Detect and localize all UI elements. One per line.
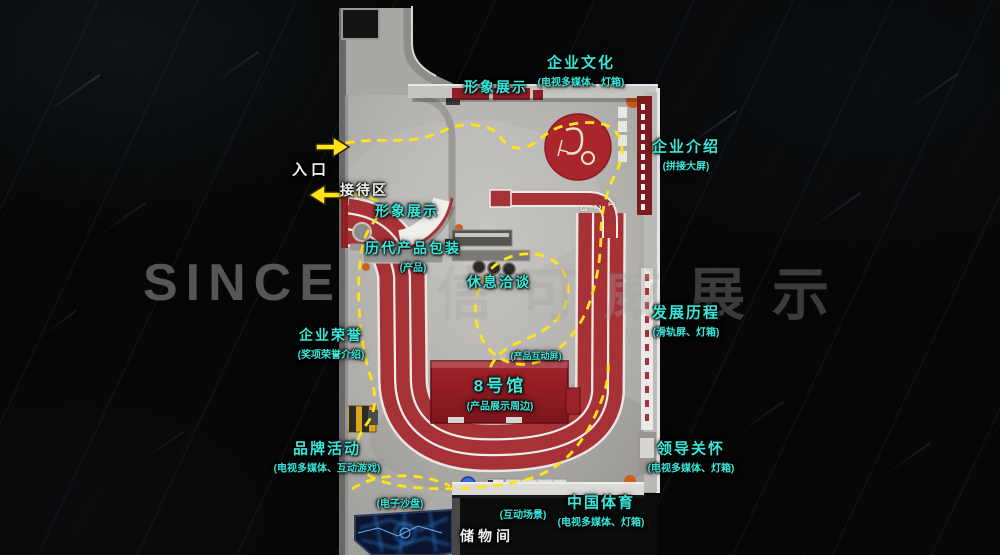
exhibition-floorplan-image: SINCE xyxy=(0,0,1000,555)
lane-number: 1 xyxy=(607,201,617,206)
zone-label-rest-area: 休息洽谈 xyxy=(467,272,531,292)
zone-label-china-sports: 中国体育 (电视多媒体、灯箱) xyxy=(558,492,645,529)
zone-label-interactive-scene: (互动场景) xyxy=(500,505,547,521)
zone-label-image-display-top: 形象展示 xyxy=(464,77,528,97)
entrance-label: 入口 xyxy=(292,159,330,180)
zone-label-corporate-intro: 企业介绍 (拼接大屏) xyxy=(652,136,720,173)
zone-label-corporate-honor: 企业荣誉 (奖项荣誉介绍) xyxy=(298,325,365,361)
storage-label: 储物间 xyxy=(460,526,514,546)
zone-label-historic-packaging: 历代产品包装 (产品) xyxy=(365,238,461,274)
booth-tag-label: (产品互动屏) xyxy=(511,348,562,362)
zone-label-development-history: 发展历程 (滑轨屏、灯箱) xyxy=(652,302,720,339)
arrow-out-icon xyxy=(309,185,342,205)
zone-label-sand-table: (电子沙盘) xyxy=(377,494,424,510)
tv-screen xyxy=(342,9,379,39)
reception-label: 接待区 xyxy=(340,180,388,200)
sand-table xyxy=(355,510,452,555)
zone-label-leadership-care: 领导关怀 (电视多媒体、灯箱) xyxy=(648,438,735,475)
corridor xyxy=(339,6,452,96)
zone-label-brand-activity: 品牌活动 (电视多媒体、互动游戏) xyxy=(274,438,381,475)
zone-label-image-display-left: 形象展示 xyxy=(375,201,439,221)
booth-hall8-label: 8号馆 (产品展示周边) xyxy=(467,372,534,413)
zone-label-corporate-culture: 企业文化 (电视多媒体、灯箱) xyxy=(538,52,625,89)
lane-number: 3 xyxy=(579,206,589,211)
lane-number: 2 xyxy=(593,204,603,209)
